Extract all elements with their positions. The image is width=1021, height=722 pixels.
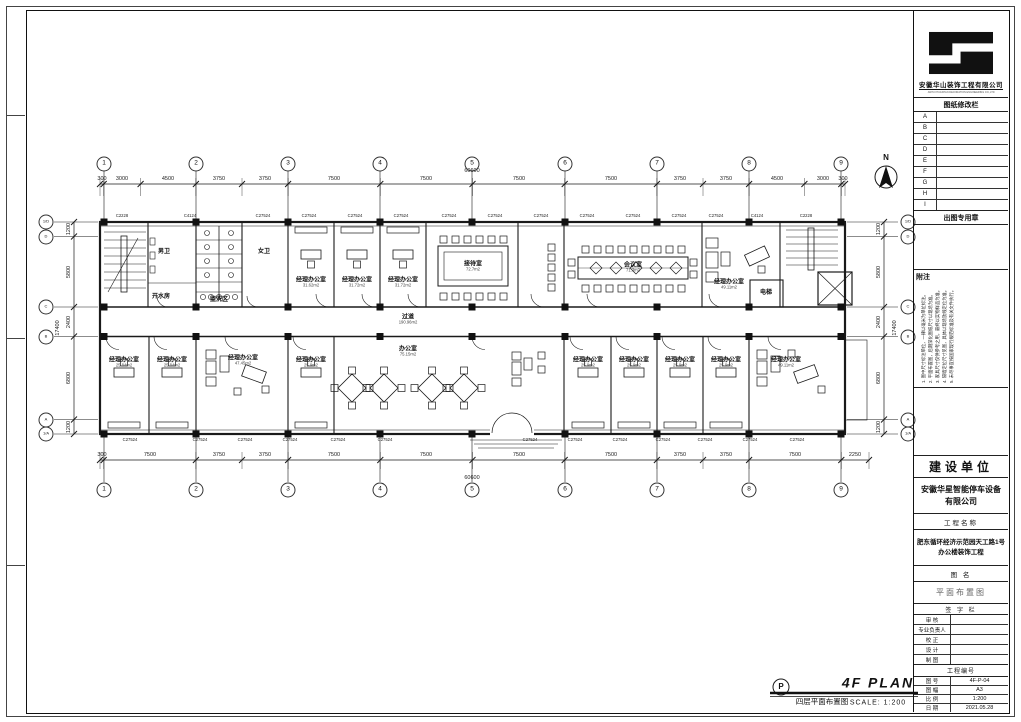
company-name-en: ANHUI HUASHAN DECORATION ENGINEERING CO.… <box>928 90 995 94</box>
drawing-info-table: 图 号4F-P-04图 幅A3比 例1:200日 期2021.05.28 <box>914 677 1008 712</box>
revision-table: ABCDEFGHI <box>914 112 1008 211</box>
revision-table-title: 图纸修改栏 <box>914 98 1008 112</box>
info-row: 日 期2021.05.28 <box>914 704 1008 712</box>
inner-border <box>26 10 1010 714</box>
info-row: 图 幅A3 <box>914 686 1008 695</box>
revision-row: D <box>914 145 1008 156</box>
plan-scale: SCALE: 1:200 <box>850 699 906 706</box>
signature-table: 审 核专业负责人校 正设 计制 图 <box>914 615 1008 665</box>
notes-section: 附注 1. 图中尺寸标注单位，一律以毫米为单位标注。2. 平面布置图，后期深化图… <box>914 270 1008 388</box>
revision-row: G <box>914 178 1008 189</box>
total-dimension-top: 60600 <box>464 169 479 175</box>
signature-row: 设 计 <box>914 645 1008 655</box>
marker-letter: P <box>778 683 783 691</box>
notes-list: 1. 图中尺寸标注单位，一律以毫米为单位标注。2. 平面布置图，后期深化图纸尺寸… <box>921 279 999 383</box>
drawing-sheet: 123456789 123456789 1/DDCBA1/A 1/DDCBA1/… <box>0 0 1021 722</box>
owner-label: 建设单位 <box>914 456 1008 478</box>
signature-label: 签 字 栏 <box>914 604 1008 615</box>
plan-title-cn: 四层平面布置图 <box>796 698 849 706</box>
project-label: 工程名称 <box>914 514 1008 530</box>
revision-row: A <box>914 112 1008 123</box>
fold-mark <box>7 115 25 116</box>
signature-row: 审 核 <box>914 615 1008 625</box>
plan-title-en: 4F PLAN <box>842 676 914 691</box>
total-dimension-left: 17400 <box>56 320 62 335</box>
north-label: N <box>883 154 889 162</box>
stamp-label: 出图专用章 <box>914 211 1008 225</box>
total-dimension-right: 17400 <box>893 320 899 335</box>
revision-row: I <box>914 200 1008 210</box>
company-logo-icon <box>929 31 993 75</box>
revision-row: F <box>914 167 1008 178</box>
company-name: 安徽华山装饰工程有限公司 <box>919 79 1003 90</box>
note-item: 3. 家具尺寸仅供参考之用，最终以实物样品为准。 <box>935 279 942 383</box>
fold-mark <box>7 565 25 566</box>
signature-row: 校 正 <box>914 635 1008 645</box>
drawing-name: 平面布置图 <box>914 582 1008 604</box>
signature-row: 制 图 <box>914 655 1008 664</box>
note-item: 4. 隔墙定位尺寸见图，具体以现场放线定位为准。 <box>942 279 949 383</box>
info-row: 比 例1:200 <box>914 695 1008 704</box>
note-item: 2. 平面布置图，后期深化图纸尺寸以现场为准。 <box>928 279 935 383</box>
revision-row: E <box>914 156 1008 167</box>
project-number-label: 工程编号 <box>914 665 1008 677</box>
owner-name: 安徽华星智能停车设备有限公司 <box>914 478 1008 514</box>
revision-row: H <box>914 189 1008 200</box>
signature-row: 专业负责人 <box>914 625 1008 635</box>
info-row: 图 号4F-P-04 <box>914 677 1008 686</box>
fold-mark <box>7 338 25 339</box>
title-block: 安徽华山装饰工程有限公司 ANHUI HUASHAN DECORATION EN… <box>913 10 1008 712</box>
project-name: 肥东循环经济示范园天工路1号办公楼装饰工程 <box>914 530 1008 566</box>
note-item: 5. 未尽事宜按国家现行规范标准及有关文件执行。 <box>949 279 956 383</box>
blank-section <box>914 388 1008 456</box>
total-dimension-bottom: 60600 <box>464 476 479 482</box>
drawing-name-label: 图 名 <box>914 566 1008 582</box>
note-item: 1. 图中尺寸标注单位，一律以毫米为单位标注。 <box>921 279 928 383</box>
revision-row: C <box>914 134 1008 145</box>
stamp-area <box>914 225 1008 270</box>
revision-row: B <box>914 123 1008 134</box>
company-block: 安徽华山装饰工程有限公司 ANHUI HUASHAN DECORATION EN… <box>914 10 1008 98</box>
